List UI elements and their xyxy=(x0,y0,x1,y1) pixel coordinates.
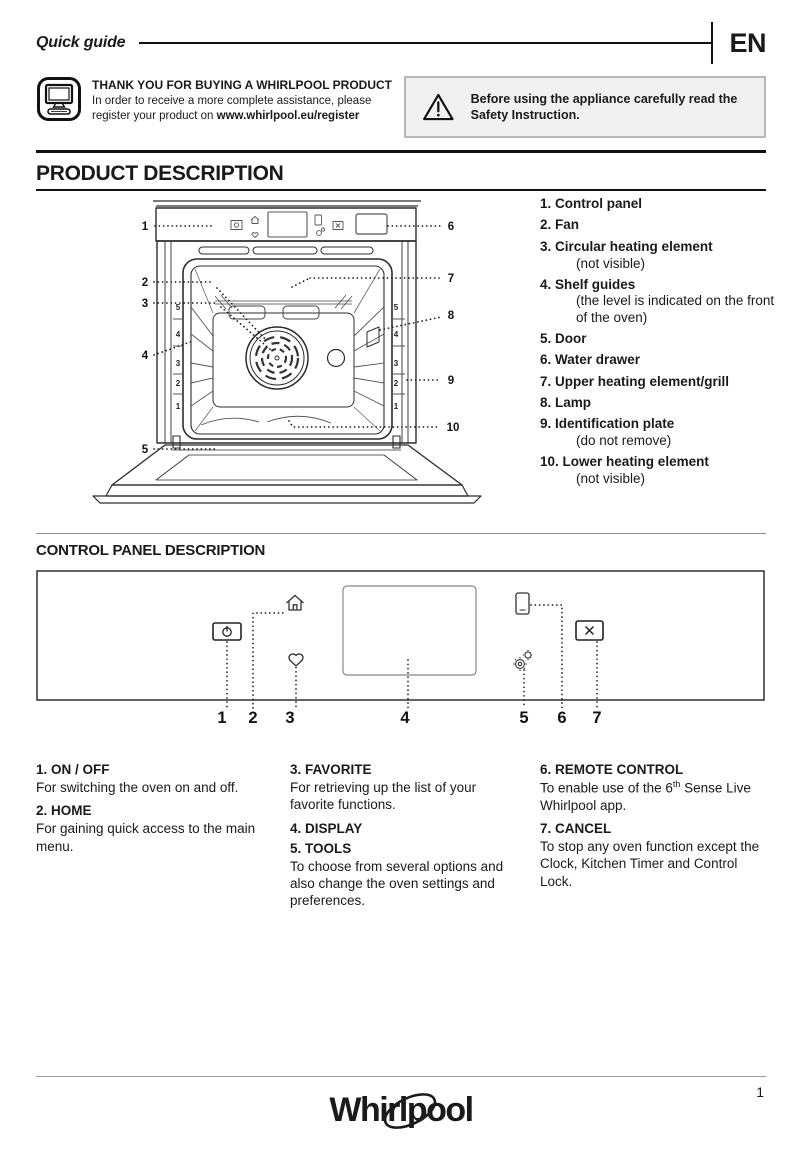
panel-callout-2: 2 xyxy=(248,709,257,727)
oven-cavity xyxy=(183,259,392,439)
registration-line2: register your product on www.whirlpool.e… xyxy=(92,109,392,124)
control-descriptions: 1. ON / OFF For switching the oven on an… xyxy=(36,762,766,916)
svg-text:1: 1 xyxy=(176,402,181,411)
svg-text:4: 4 xyxy=(176,330,181,339)
mini-heart-icon xyxy=(252,233,258,238)
callout-2: 2 xyxy=(142,277,148,289)
svg-text:1: 1 xyxy=(394,402,399,411)
desc-text-onoff: For switching the oven on and off. xyxy=(36,779,260,796)
part-note: (the level is indicated on the front of … xyxy=(576,293,776,326)
warning-triangle-icon xyxy=(422,87,455,127)
desc-title-onoff: 1. ON / OFF xyxy=(36,762,290,777)
lower-heating-element xyxy=(201,416,331,425)
register-url[interactable]: www.whirlpool.eu/register xyxy=(217,110,360,122)
part-note: (not visible) xyxy=(576,471,776,487)
oven-door xyxy=(93,445,481,503)
panel-callout-3: 3 xyxy=(285,709,294,727)
panel-callout-6: 6 xyxy=(557,709,566,727)
panel-callout-4: 4 xyxy=(400,709,410,727)
control-panel-section: CONTROL PANEL DESCRIPTION xyxy=(36,533,766,736)
mini-gear-icon xyxy=(317,231,322,236)
product-section: 5 4 3 2 1 5 4 3 2 1 1 2 3 4 5 6 7 8 xyxy=(36,191,766,527)
product-description-heading: PRODUCT DESCRIPTION xyxy=(36,162,766,186)
panel-callout-7: 7 xyxy=(592,709,601,727)
warning-text: Before using the appliance carefully rea… xyxy=(471,91,752,124)
desc-text-favorite: For retrieving up the list of your favor… xyxy=(290,779,524,814)
desc-column-1: 1. ON / OFF For switching the oven on an… xyxy=(36,762,290,916)
callout-3: 3 xyxy=(142,298,148,310)
door-hinge-left xyxy=(173,436,180,448)
panel-callout-lines xyxy=(227,605,597,708)
callout-4: 4 xyxy=(142,350,149,362)
mini-home-icon xyxy=(251,217,259,224)
water-drawer xyxy=(356,214,387,234)
svg-text:5: 5 xyxy=(394,303,399,312)
callout-7: 7 xyxy=(448,273,454,285)
desc-text-tools: To choose from several options and also … xyxy=(290,858,524,910)
part-item: 3. Circular heating element (not visible… xyxy=(540,239,776,272)
whirlpool-logo-text: Whirlpool xyxy=(329,1091,472,1129)
part-item: 5. Door xyxy=(540,331,776,348)
part-item: 1. Control panel xyxy=(540,196,776,213)
desc-title-display: 4. DISPLAY xyxy=(290,821,540,836)
desc-title-cancel: 7. CANCEL xyxy=(540,821,766,836)
desc-text-remote: To enable use of the 6th Sense Live Whir… xyxy=(540,779,766,814)
part-item: 10. Lower heating element (not visible) xyxy=(540,454,776,487)
desc-title-tools: 5. TOOLS xyxy=(290,841,540,856)
control-panel-diagram: 1 2 3 4 5 6 7 xyxy=(36,566,766,731)
svg-text:3: 3 xyxy=(394,359,399,368)
safety-warning-box: Before using the appliance carefully rea… xyxy=(404,76,766,138)
callout-9: 9 xyxy=(448,375,454,387)
cancel-x-icon xyxy=(576,621,603,640)
page-number: 1 xyxy=(756,1084,764,1100)
registration-block: THANK YOU FOR BUYING A WHIRLPOOL PRODUCT… xyxy=(36,76,392,123)
panel-callout-1: 1 xyxy=(217,709,226,727)
footer-rule xyxy=(36,1076,766,1077)
control-panel-heading: CONTROL PANEL DESCRIPTION xyxy=(36,542,766,559)
desc-text-cancel: To stop any oven function except the Clo… xyxy=(540,838,766,890)
oven-panel-icons xyxy=(231,212,387,238)
tools-gear-icon xyxy=(513,650,531,671)
quick-guide-page: { "header": { "title": "Quick guide", "l… xyxy=(0,22,802,1156)
vent-slots xyxy=(199,247,373,254)
mini-phone-icon xyxy=(315,215,322,225)
identification-plate xyxy=(367,327,379,347)
svg-text:3: 3 xyxy=(176,359,181,368)
callout-10: 10 xyxy=(447,422,460,434)
svg-text:2: 2 xyxy=(176,379,181,388)
callout-1: 1 xyxy=(142,221,149,233)
oven-diagram: 5 4 3 2 1 5 4 3 2 1 1 2 3 4 5 6 7 8 xyxy=(85,195,505,515)
svg-text:2: 2 xyxy=(394,379,399,388)
desc-column-3: 6. REMOTE CONTROL To enable use of the 6… xyxy=(540,762,766,916)
part-item: 6. Water drawer xyxy=(540,352,776,369)
lamp-icon xyxy=(328,350,345,367)
display-screen xyxy=(343,586,476,675)
intro-row: THANK YOU FOR BUYING A WHIRLPOOL PRODUCT… xyxy=(36,76,766,138)
header-divider xyxy=(711,22,713,64)
parts-list: 1. Control panel 2. Fan 3. Circular heat… xyxy=(540,191,776,488)
control-panel-outline xyxy=(37,571,764,700)
part-note: (not visible) xyxy=(576,256,776,272)
part-item: 9. Identification plate (do not remove) xyxy=(540,416,776,449)
desc-title-favorite: 3. FAVORITE xyxy=(290,762,540,777)
desc-column-2: 3. FAVORITE For retrieving up the list o… xyxy=(290,762,540,916)
part-item: 2. Fan xyxy=(540,217,776,234)
door-hinge-right xyxy=(393,436,400,448)
callout-6: 6 xyxy=(448,221,454,233)
svg-text:5: 5 xyxy=(176,303,181,312)
part-item: 7. Upper heating element/grill xyxy=(540,374,776,391)
register-computer-icon xyxy=(36,76,82,122)
home-icon xyxy=(287,596,304,611)
mini-display xyxy=(268,212,307,237)
desc-title-remote: 6. REMOTE CONTROL xyxy=(540,762,766,777)
fan-icon xyxy=(246,327,308,389)
callout-8: 8 xyxy=(448,310,455,322)
callout-5: 5 xyxy=(142,444,149,456)
favorite-heart-icon xyxy=(289,654,303,666)
registration-title: THANK YOU FOR BUYING A WHIRLPOOL PRODUCT xyxy=(92,78,392,94)
panel-callout-5: 5 xyxy=(519,709,528,727)
registration-text: THANK YOU FOR BUYING A WHIRLPOOL PRODUCT… xyxy=(92,76,392,123)
part-item: 8. Lamp xyxy=(540,395,776,412)
registration-line1: In order to receive a more complete assi… xyxy=(92,94,392,109)
power-icon xyxy=(213,623,241,640)
desc-title-home: 2. HOME xyxy=(36,803,290,818)
remote-phone-icon xyxy=(516,593,529,614)
page-header: Quick guide EN xyxy=(36,22,766,64)
part-note: (do not remove) xyxy=(576,433,776,449)
page-title: Quick guide xyxy=(36,34,125,52)
section-rule xyxy=(36,150,766,153)
oven-control-panel xyxy=(156,208,416,241)
desc-text-home: For gaining quick access to the main men… xyxy=(36,820,260,855)
header-rule xyxy=(139,42,711,44)
svg-text:4: 4 xyxy=(394,330,399,339)
part-item: 4. Shelf guides (the level is indicated … xyxy=(540,277,776,327)
language-code: EN xyxy=(729,28,766,59)
shelf-guides xyxy=(173,307,405,406)
panel-callout-numbers: 1 2 3 4 5 6 7 xyxy=(217,709,601,727)
